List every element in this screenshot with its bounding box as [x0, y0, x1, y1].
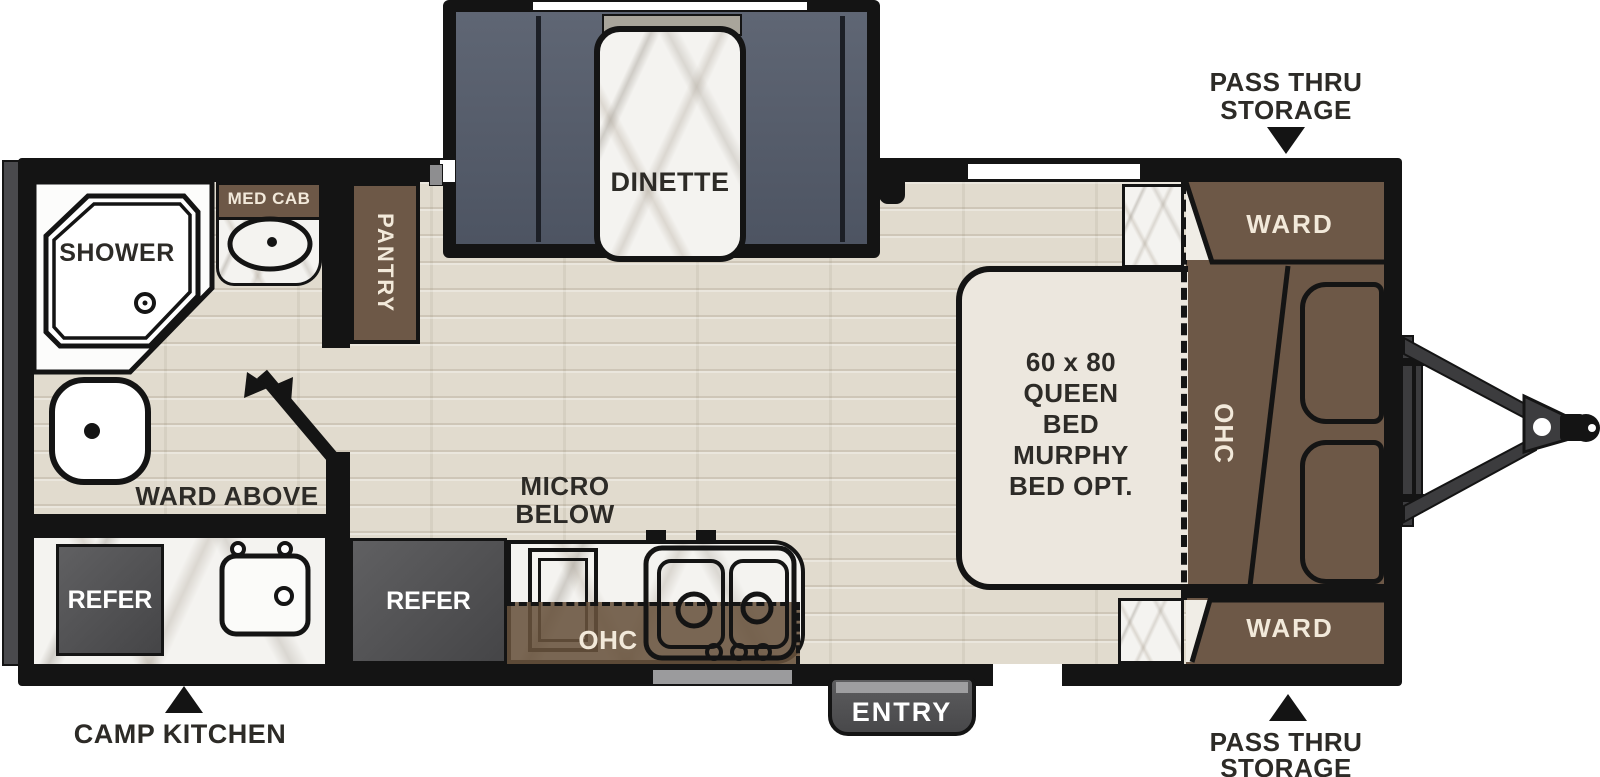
- dinette-label: DINETTE: [594, 168, 746, 197]
- hitch-frame-bar-1: [1402, 336, 1413, 526]
- bed-label-line3: BED: [958, 410, 1184, 438]
- pantry-label: PANTRY: [372, 213, 398, 313]
- pantry: PANTRY: [350, 182, 420, 344]
- hitch-frame-bar-2: [1415, 350, 1422, 512]
- bedroom-ohc-wrap: OHC: [1192, 398, 1254, 468]
- front-storage-cushion-top: [1300, 282, 1384, 424]
- hitch-cross-nub-top: [1402, 358, 1424, 366]
- hitch-cross-nub-bottom: [1402, 494, 1424, 502]
- ward-top-label: WARD: [1210, 210, 1370, 238]
- vanity: [216, 220, 322, 286]
- floorplan-canvas: DINETTE MED CAB SHOWER WARD ABOVE PANTRY…: [0, 0, 1600, 777]
- wall-step-strip: [653, 670, 792, 684]
- micro-below-line2: BELOW: [500, 500, 630, 528]
- nightstand-top: [1122, 184, 1184, 268]
- micro-below-line1: MICRO: [500, 472, 630, 500]
- pass-thru-top-line2: STORAGE: [1191, 96, 1381, 124]
- pass-thru-top-arrow: [1267, 127, 1305, 154]
- bath-wall-upper: [322, 182, 350, 348]
- pass-thru-top-line1: PASS THRU: [1191, 68, 1381, 96]
- hitch-arm-top: [1404, 338, 1536, 424]
- nightstand-bottom: [1118, 598, 1184, 664]
- pass-thru-bottom-line2: STORAGE: [1191, 754, 1381, 777]
- entry-threshold: [836, 682, 968, 693]
- hitch-plate-hole: [1533, 418, 1551, 436]
- bed-label-line4: MURPHY: [958, 441, 1184, 469]
- kitchen-refer: REFER: [350, 538, 507, 664]
- entry-door-opening: [993, 664, 1062, 686]
- slideout-window-slot: [533, 2, 807, 10]
- bench-divider-left: [536, 16, 541, 242]
- bed-label-line2: QUEEN: [958, 379, 1184, 407]
- camp-kitchen-label: CAMP KITCHEN: [30, 720, 330, 749]
- camp-kitchen-divider: [325, 538, 350, 664]
- camp-kitchen-arrow: [165, 686, 203, 713]
- kitchen-ohc-label: OHC: [548, 626, 668, 654]
- bench-divider-right: [840, 16, 845, 242]
- ward-above-label: WARD ABOVE: [118, 482, 336, 510]
- hitch-coupler-ball: [1572, 414, 1600, 442]
- camp-refer-label: REFER: [68, 586, 153, 615]
- slideout-latch: [879, 182, 905, 204]
- entry-label: ENTRY: [828, 698, 976, 727]
- slideout-cap: [429, 164, 443, 186]
- shower-label: SHOWER: [52, 240, 182, 267]
- hitch-plate: [1524, 396, 1566, 452]
- hitch-coupler-neck: [1560, 414, 1584, 441]
- ward-bottom-label: WARD: [1210, 614, 1370, 642]
- pass-thru-bottom-arrow: [1269, 694, 1307, 721]
- bed-foot-wall-line: [1186, 584, 1384, 598]
- bed-label-line1: 60 x 80: [958, 348, 1184, 376]
- bed-label-line5: BED OPT.: [958, 472, 1184, 500]
- bath-bottom-wall: [34, 514, 350, 538]
- bedroom-ohc-label: OHC: [1208, 403, 1239, 464]
- med-cab-label: MED CAB: [216, 190, 322, 208]
- hitch-coupler-slot: [1588, 424, 1596, 432]
- front-storage-cushion-bottom: [1300, 440, 1384, 584]
- hitch-arm-bottom: [1404, 436, 1536, 522]
- kitchen-refer-label: REFER: [386, 587, 471, 616]
- pass-thru-bottom-line1: PASS THRU: [1191, 728, 1381, 756]
- camp-refer: REFER: [56, 544, 164, 656]
- bedroom-window: [968, 164, 1140, 179]
- dinette-table: [594, 26, 746, 262]
